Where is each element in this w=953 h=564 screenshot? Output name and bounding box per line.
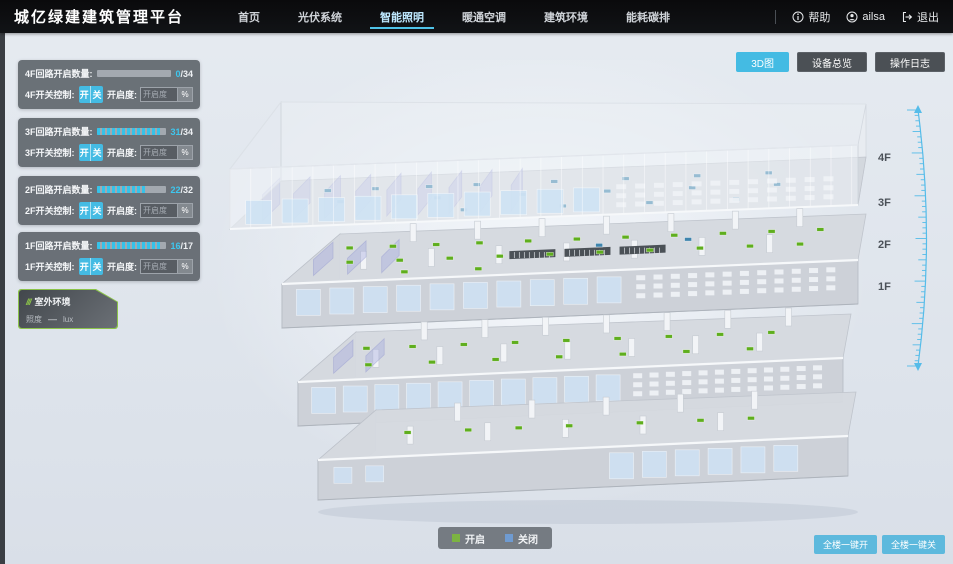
env-icon: /// — [26, 297, 31, 307]
switch-on-button[interactable]: 开 — [79, 86, 91, 103]
floor-label-4f[interactable]: 4F — [878, 152, 891, 164]
help-label: 帮助 — [808, 9, 830, 25]
user-menu[interactable]: ailsa — [846, 11, 885, 23]
switch-off-button[interactable]: 关 — [91, 144, 103, 161]
circuit-progress-fill — [97, 128, 161, 135]
illuminance-unit: lux — [63, 315, 73, 324]
dim-level-input[interactable] — [140, 203, 178, 218]
floor-panel-4f: 4F回路开启数量: 0/34 4F开关控制: 开关 开启度: % — [18, 60, 200, 109]
dim-level-label: 开启度: — [107, 88, 137, 101]
global-actions: 全楼一键开 全楼一键关 — [814, 535, 945, 554]
dim-level-label: 开启度: — [107, 146, 137, 159]
circuit-count-value: 0/34 — [175, 69, 193, 79]
percent-apply-button[interactable]: % — [178, 259, 193, 274]
floor-label-1f[interactable]: 1F — [878, 281, 891, 293]
legend-swatch-on — [452, 534, 460, 542]
circuit-count-value: 22/32 — [170, 185, 193, 195]
user-icon — [846, 11, 858, 23]
dim-level-input[interactable] — [140, 145, 178, 160]
status-legend: 开启 关闭 — [438, 527, 552, 549]
main-nav: 首页 光伏系统 智能照明 暖通空调 建筑环境 能耗碳排 — [234, 0, 674, 33]
nav-item-building-env[interactable]: 建筑环境 — [540, 0, 592, 33]
switch-on-button[interactable]: 开 — [79, 144, 91, 161]
percent-apply-button[interactable]: % — [178, 203, 193, 218]
dim-level-input[interactable] — [140, 259, 178, 274]
outdoor-env-panel: /// 室外环境 照度 — lux — [18, 289, 118, 329]
all-off-button[interactable]: 全楼一键关 — [882, 535, 945, 554]
circuit-progress-fill — [97, 242, 163, 249]
illuminance-value: — — [48, 314, 57, 324]
circuit-count-value: 31/34 — [170, 127, 193, 137]
dim-level-label: 开启度: — [107, 204, 137, 217]
header-divider — [775, 10, 776, 24]
switch-control-label: 2F开关控制: — [25, 204, 75, 217]
percent-apply-button[interactable]: % — [178, 145, 193, 160]
illuminance-label: 照度 — [26, 314, 42, 325]
view-3d-button[interactable]: 3D图 — [736, 52, 789, 72]
floor-label-2f[interactable]: 2F — [878, 239, 891, 251]
percent-apply-button[interactable]: % — [178, 87, 193, 102]
device-overview-button[interactable]: 设备总览 — [797, 52, 867, 72]
app-header: 城亿绿建建筑管理平台 首页 光伏系统 智能照明 暖通空调 建筑环境 能耗碳排 帮… — [0, 0, 953, 33]
circuit-count-label: 4F回路开启数量: — [25, 67, 93, 80]
floor-panel-1f: 1F回路开启数量: 16/17 1F开关控制: 开关 开启度: % — [18, 232, 200, 281]
help-button[interactable]: 帮助 — [792, 9, 830, 25]
logout-button[interactable]: 退出 — [901, 9, 939, 25]
floor-panel-2f: 2F回路开启数量: 22/32 2F开关控制: 开关 开启度: % — [18, 176, 200, 225]
circuit-count-label: 3F回路开启数量: — [25, 125, 93, 138]
switch-on-button[interactable]: 开 — [79, 258, 91, 275]
floor-label-3f[interactable]: 3F — [878, 197, 891, 209]
nav-item-smart-lighting[interactable]: 智能照明 — [376, 0, 428, 33]
nav-item-home[interactable]: 首页 — [234, 0, 264, 33]
switch-control-label: 3F开关控制: — [25, 146, 75, 159]
username-label: ailsa — [862, 11, 885, 23]
logout-label: 退出 — [917, 9, 939, 25]
circuit-count-value: 16/17 — [170, 241, 193, 251]
circuit-count-label: 2F回路开启数量: — [25, 183, 93, 196]
legend-item-on: 开启 — [452, 531, 485, 546]
switch-control-label: 1F开关控制: — [25, 260, 75, 273]
circuit-progress-bar — [97, 70, 172, 77]
nav-item-pv-system[interactable]: 光伏系统 — [294, 0, 346, 33]
building-3d-view[interactable] — [218, 92, 918, 532]
nav-item-hvac[interactable]: 暖通空调 — [458, 0, 510, 33]
switch-off-button[interactable]: 关 — [91, 258, 103, 275]
circuit-progress-bar — [97, 242, 167, 249]
operation-log-button[interactable]: 操作日志 — [875, 52, 945, 72]
legend-item-off: 关闭 — [505, 531, 538, 546]
switch-off-button[interactable]: 关 — [91, 86, 103, 103]
circuit-progress-fill — [97, 186, 145, 193]
left-edge-strip — [0, 33, 5, 564]
circuit-count-label: 1F回路开启数量: — [25, 239, 93, 252]
logout-icon — [901, 11, 913, 23]
dim-level-input[interactable] — [140, 87, 178, 102]
app-title: 城亿绿建建筑管理平台 — [14, 6, 184, 27]
outdoor-env-title: 室外环境 — [35, 295, 71, 308]
circuit-progress-bar — [97, 186, 167, 193]
switch-off-button[interactable]: 关 — [91, 202, 103, 219]
switch-on-button[interactable]: 开 — [79, 202, 91, 219]
nav-item-energy-carbon[interactable]: 能耗碳排 — [622, 0, 674, 33]
floor-panel-3f: 3F回路开启数量: 31/34 3F开关控制: 开关 开启度: % — [18, 118, 200, 167]
switch-control-label: 4F开关控制: — [25, 88, 75, 101]
view-switcher: 3D图 设备总览 操作日志 — [736, 52, 945, 72]
floor-zoom-slider[interactable] — [905, 104, 939, 374]
legend-swatch-off — [505, 534, 513, 542]
all-on-button[interactable]: 全楼一键开 — [814, 535, 877, 554]
circuit-progress-bar — [97, 128, 167, 135]
dim-level-label: 开启度: — [107, 260, 137, 273]
info-icon — [792, 11, 804, 23]
